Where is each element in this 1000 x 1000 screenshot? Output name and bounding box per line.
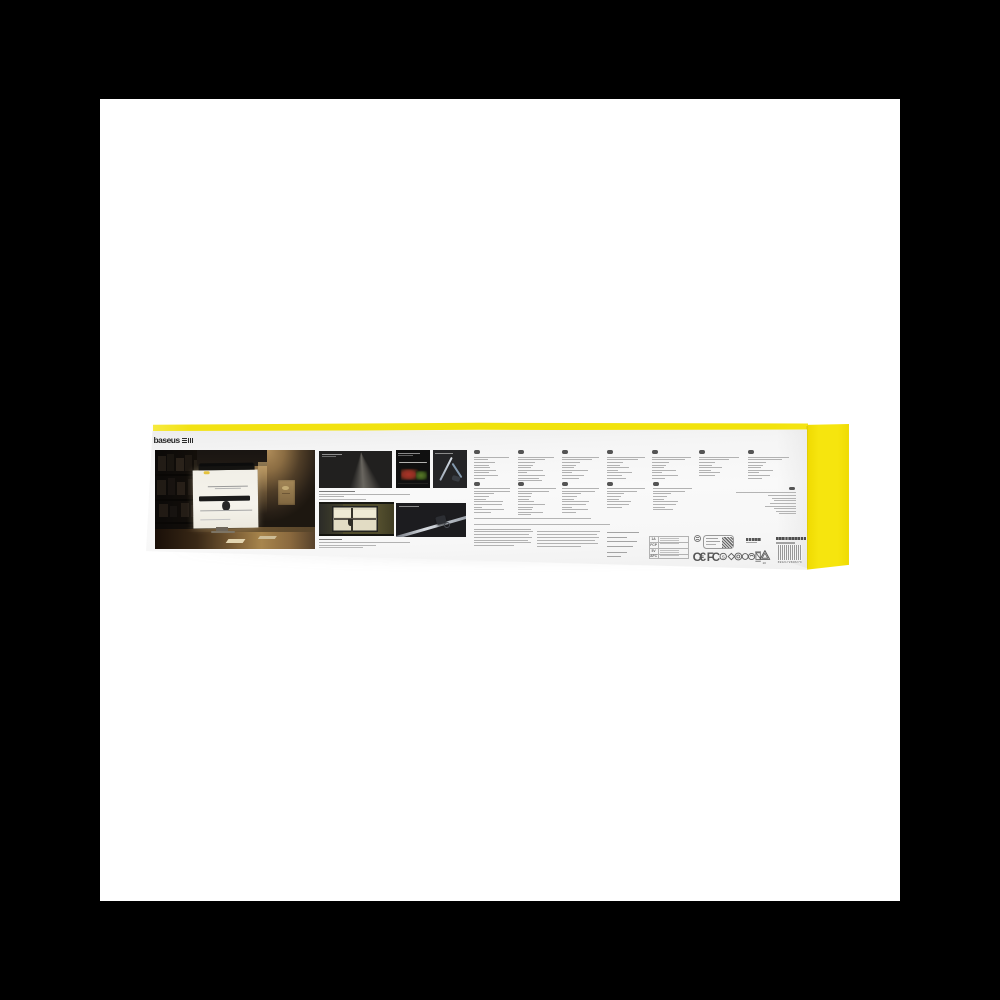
- svg-text:S: S: [722, 554, 725, 559]
- svg-text:C€: C€: [693, 550, 707, 564]
- svg-text:20: 20: [763, 560, 767, 564]
- svg-text:FC: FC: [707, 551, 721, 564]
